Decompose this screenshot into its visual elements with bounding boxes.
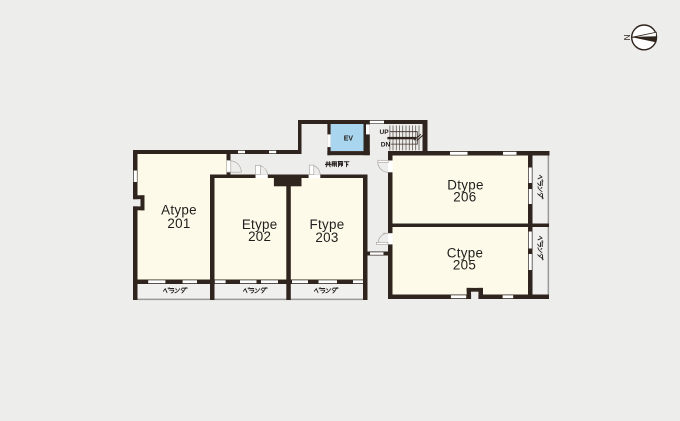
- svg-text:EV: EV: [344, 136, 354, 143]
- svg-text:UP: UP: [380, 129, 390, 136]
- svg-text:N: N: [623, 34, 632, 40]
- svg-text:205: 205: [453, 258, 476, 273]
- svg-text:203: 203: [315, 230, 338, 245]
- svg-text:202: 202: [248, 229, 271, 244]
- svg-text:206: 206: [453, 190, 476, 205]
- svg-text:DN: DN: [381, 142, 391, 149]
- svg-text:201: 201: [167, 216, 190, 231]
